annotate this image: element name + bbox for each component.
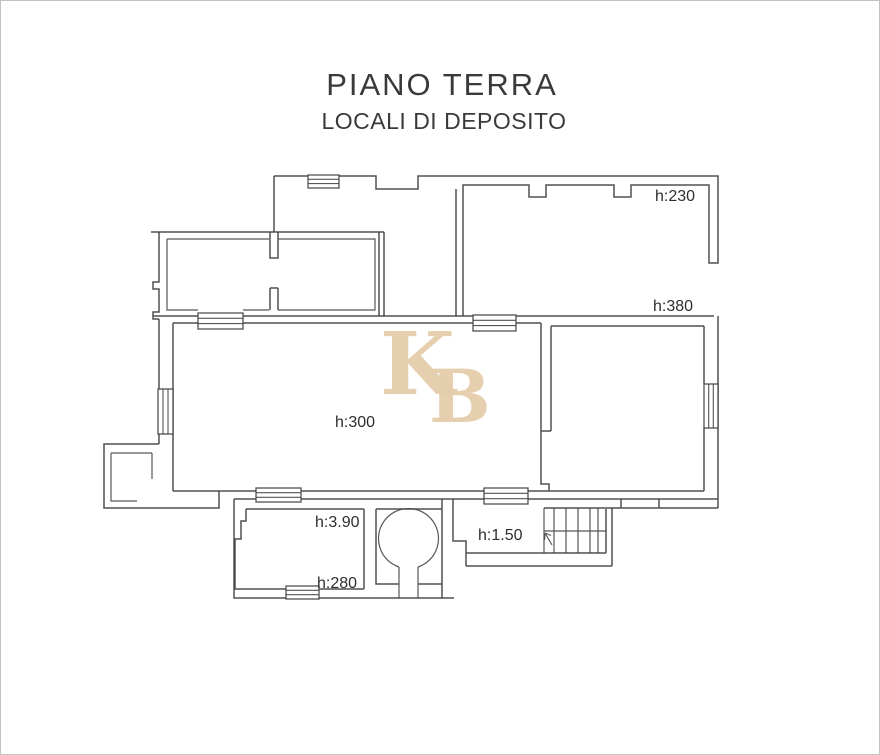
kb-watermark: K B <box>380 314 491 440</box>
window-symbol-uppercenter <box>473 315 516 331</box>
stair-direction-arrow <box>545 533 553 545</box>
label-h300: h:300 <box>335 414 375 431</box>
window-symbol-upperleft <box>198 313 243 329</box>
wall-partition-door-stubs <box>270 232 278 310</box>
wall-bottomleft-step <box>151 491 219 508</box>
room-height-labels: h:230 h:380 h:300 h:3.90 h:280 h:1.50 <box>315 188 695 592</box>
tank-legs <box>399 567 418 598</box>
stair-treads <box>544 508 606 553</box>
window-symbol-lowerleft <box>256 488 301 502</box>
wall-topleft-room-inner <box>167 239 269 310</box>
tank-circle <box>379 509 439 567</box>
page-title: PIANO TERRA <box>326 67 558 102</box>
wall-left-protrusion-inner <box>111 453 152 501</box>
label-h280: h:280 <box>317 575 357 592</box>
wall-outer-top-and-h230-room <box>274 176 718 316</box>
window-symbol-bottomroom <box>286 586 319 599</box>
window-symbol-lowercenter <box>484 488 528 504</box>
wall-left-outer-notched <box>153 232 159 319</box>
header: PIANO TERRA LOCALI DI DEPOSITO <box>321 67 566 134</box>
window-symbol-rightwall <box>704 384 718 428</box>
floor-plan-page: K B <box>0 0 880 755</box>
window-symbol-top <box>308 175 339 188</box>
label-h230: h:230 <box>655 188 695 205</box>
label-h390: h:3.90 <box>315 514 360 531</box>
label-h150: h:1.50 <box>478 527 523 544</box>
label-h380: h:380 <box>653 298 693 315</box>
watermark-letter-b: B <box>429 354 491 440</box>
wall-mainroom-right-with-door <box>541 323 551 491</box>
wall-rightroom-inner <box>551 326 704 431</box>
floor-plan-drawing: K B <box>1 1 880 755</box>
wall-topright-subroom-inner <box>278 239 375 310</box>
window-symbol-leftwall <box>158 389 173 434</box>
wall-bottomright-outer-ticks <box>544 499 718 508</box>
wall-partition-double <box>379 232 384 316</box>
wall-tank-room <box>376 499 466 598</box>
page-subtitle: LOCALI DI DEPOSITO <box>321 108 566 134</box>
